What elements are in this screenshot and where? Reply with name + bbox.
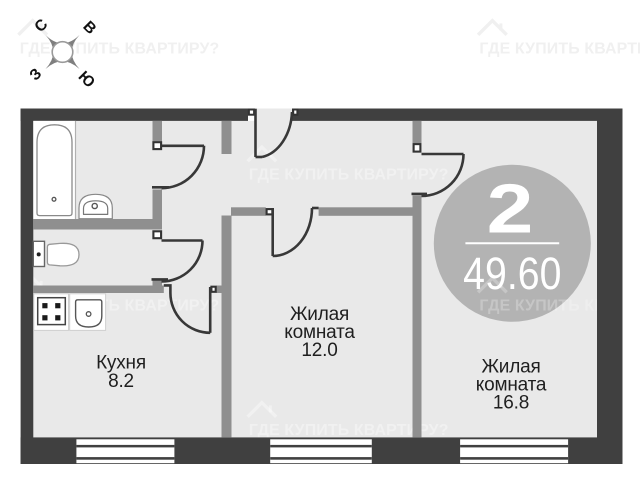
svg-text:2: 2	[487, 170, 534, 248]
svg-text:8.2: 8.2	[108, 371, 134, 392]
svg-text:16.8: 16.8	[493, 393, 529, 414]
svg-text:ГДЕ КУПИТЬ КВАРТИРУ?: ГДЕ КУПИТЬ КВАРТИРУ?	[479, 40, 640, 57]
svg-text:ГДЕ КУПИТЬ КВАРТИРУ?: ГДЕ КУПИТЬ КВАРТИРУ?	[20, 40, 220, 57]
svg-text:ГДЕ КУПИТЬ КВАРТИРУ?: ГДЕ КУПИТЬ КВАРТИРУ?	[249, 167, 449, 184]
svg-text:12.0: 12.0	[301, 340, 337, 361]
